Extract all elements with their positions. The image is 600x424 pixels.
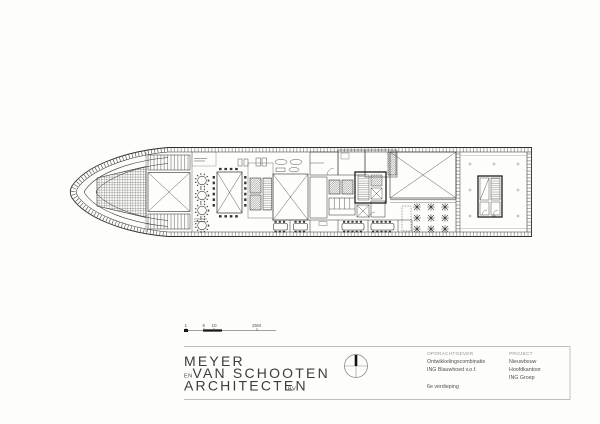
project-line-1: Nieuwbouw (509, 359, 537, 365)
client-label: OPDRACHTGEVER (427, 351, 474, 357)
stair-core-right (478, 176, 502, 217)
right-wing (456, 152, 527, 232)
terrace-plants (402, 203, 449, 233)
project-line-3: ING Groep (509, 375, 535, 381)
central-core (310, 150, 397, 218)
scale-label-1: 1 (185, 323, 188, 328)
project-line-2: Hoofdkantoor (509, 367, 541, 373)
conference-area (192, 152, 245, 232)
drawing-canvas: 1 5 10 25M MEYER EN VAN SCHOOTEN ARCHITE… (0, 0, 600, 424)
floor-plan (70, 148, 531, 237)
scale-label-25m: 25M (252, 323, 261, 328)
drawing-sheet: 1 5 10 25M MEYER EN VAN SCHOOTEN ARCHITE… (0, 0, 600, 424)
meeting-table (342, 222, 364, 232)
conference-table (214, 169, 246, 216)
meeting-table (294, 222, 308, 232)
round-tables (196, 174, 209, 232)
client-block: OPDRACHTGEVER Ontwikkelingscombinatie IN… (427, 351, 485, 390)
right-void (390, 152, 456, 203)
north-arrow-icon (345, 355, 368, 378)
client-line-1: Ontwikkelingscombinatie (427, 359, 485, 365)
central-void (273, 174, 308, 220)
meeting-rooms (272, 220, 412, 232)
left-core (146, 152, 192, 232)
architect-logo: MEYER EN VAN SCHOOTEN ARCHITECTEN BV (184, 353, 330, 394)
floor-label: 6e verdieping (427, 384, 459, 390)
scale-label-10: 10 (212, 323, 218, 328)
logo-bv: BV (288, 387, 296, 393)
scale-bar: 1 5 10 25M (184, 323, 276, 332)
title-block: MEYER EN VAN SCHOOTEN ARCHITECTEN BV OPD… (184, 347, 570, 400)
client-line-2: ING Blauwhoed v.o.f. (427, 367, 477, 373)
stair-core-left (248, 163, 273, 218)
scale-label-5: 5 (203, 323, 206, 328)
meeting-table (274, 222, 288, 232)
project-block: PROJECT Nieuwbouw Hoofdkantoor ING Groep (509, 351, 541, 381)
meeting-table (371, 222, 394, 232)
project-label: PROJECT (509, 351, 533, 357)
lounge-furniture (238, 158, 302, 172)
